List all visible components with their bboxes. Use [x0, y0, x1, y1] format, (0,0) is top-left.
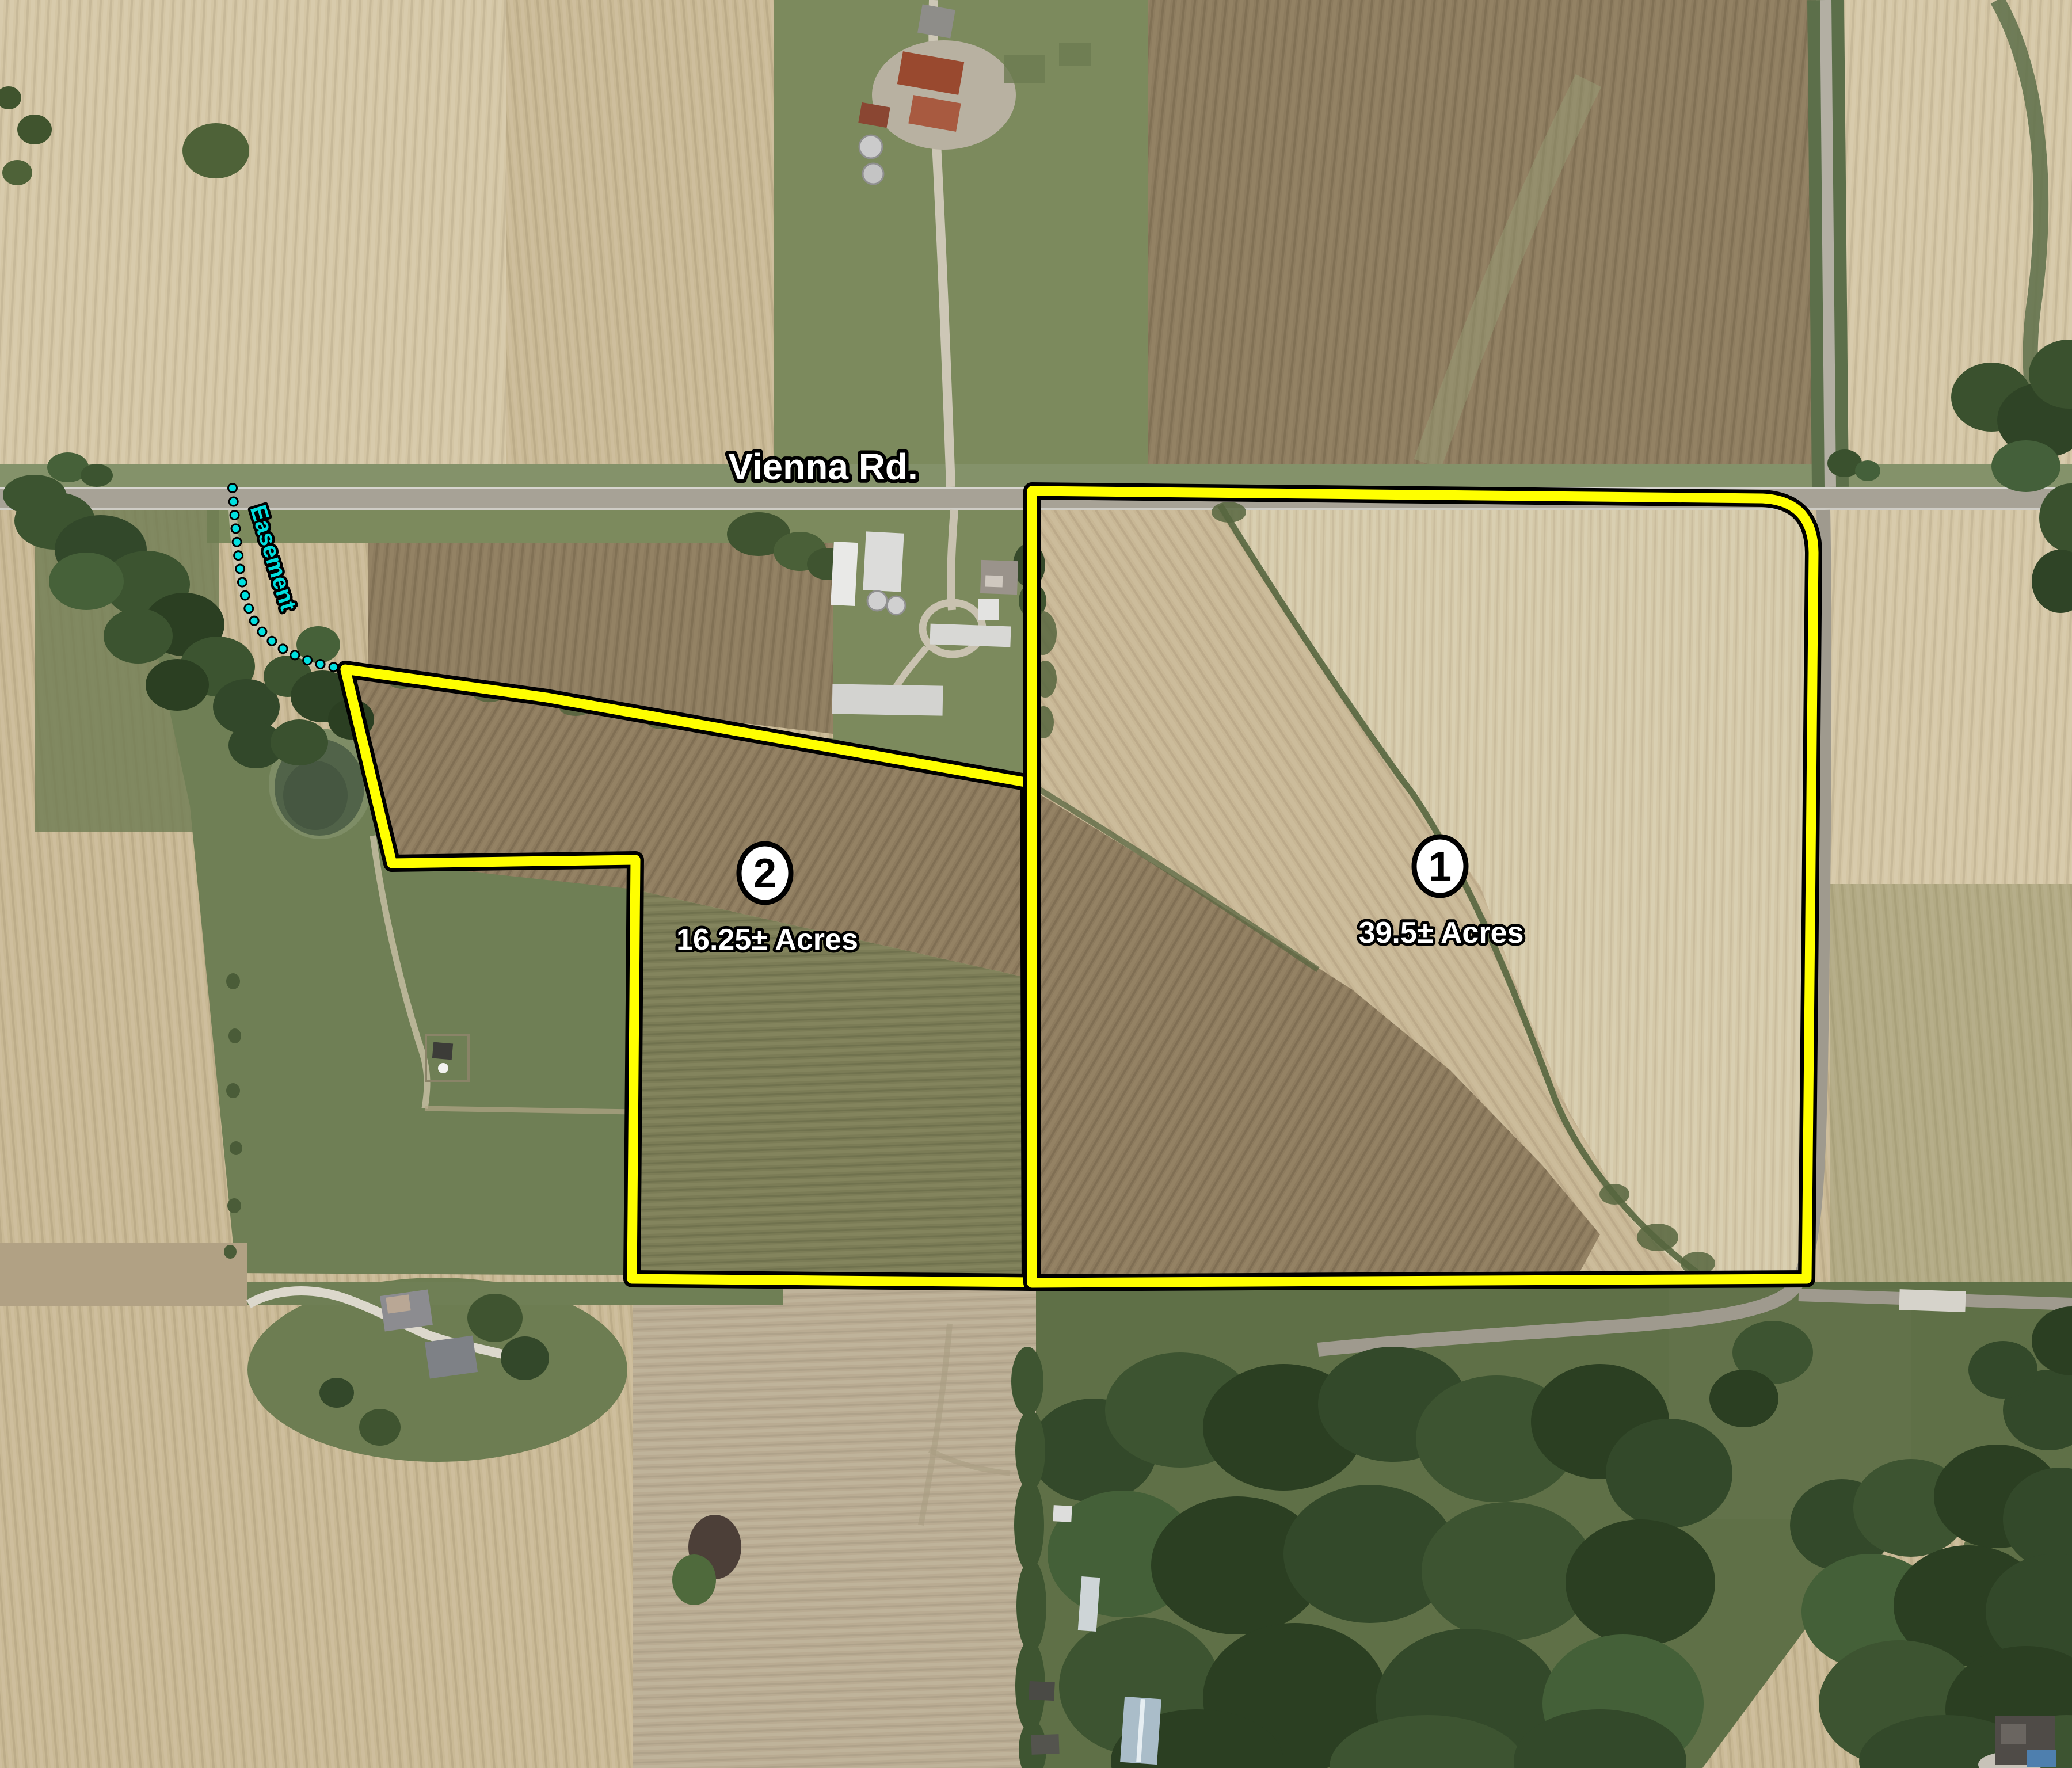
shed-gray-north [917, 4, 955, 38]
house-southeast-gable [2001, 1724, 2026, 1744]
field-northeast-brown [1148, 0, 1816, 464]
shed-white-center [978, 599, 999, 620]
farm-house-porch [985, 575, 1003, 587]
barn-long-upper [930, 624, 1011, 647]
machine-shed-b [863, 531, 904, 592]
headland-strip-southwest [0, 1243, 247, 1306]
grain-bin-center-a [867, 591, 887, 611]
grain-bin-center-b [887, 596, 905, 615]
machine-shed-a [831, 542, 858, 606]
pasture-dirt-spur [425, 1108, 634, 1112]
aerial-parcel-map: Vienna Rd. Easement 1 39.5± Acres 2 16.2… [0, 0, 2072, 1768]
parcel-2-number: 2 [753, 851, 776, 897]
livestock-pen-b [1059, 43, 1091, 66]
parcel-1-number: 1 [1429, 844, 1452, 890]
shed-dark-b [1031, 1734, 1059, 1755]
house-southwest-b [425, 1335, 478, 1378]
house-southwest-a-wing [386, 1294, 411, 1313]
field-northwest [0, 0, 506, 464]
driveway-center-farm [951, 510, 954, 610]
compound-tank [438, 1063, 448, 1073]
parcel-2-acreage: 16.25± Acres [676, 923, 858, 957]
grain-bin-north-a [859, 135, 882, 158]
road-label: Vienna Rd. [728, 446, 918, 487]
road-north-branch [1826, 0, 1830, 487]
field-south-center [633, 1282, 1036, 1768]
shed-white-small [1053, 1505, 1072, 1522]
grain-bin-north-b [863, 163, 883, 184]
field-north-center [506, 0, 774, 464]
bridge [1899, 1289, 1966, 1312]
compound-shed [432, 1042, 453, 1060]
shed-dark-a [1029, 1681, 1055, 1701]
barn-long-lower [832, 684, 943, 715]
farm-north-pad [872, 40, 1016, 150]
livestock-pen-a [1004, 55, 1045, 83]
pond-deep [283, 761, 348, 830]
swimming-pool [2027, 1750, 2056, 1767]
parcel-1-acreage: 39.5± Acres [1359, 916, 1524, 950]
field-east-of-road-green-tint [1830, 884, 2072, 1283]
road-south-verge [207, 510, 1151, 543]
shed-long-white [1078, 1576, 1100, 1632]
